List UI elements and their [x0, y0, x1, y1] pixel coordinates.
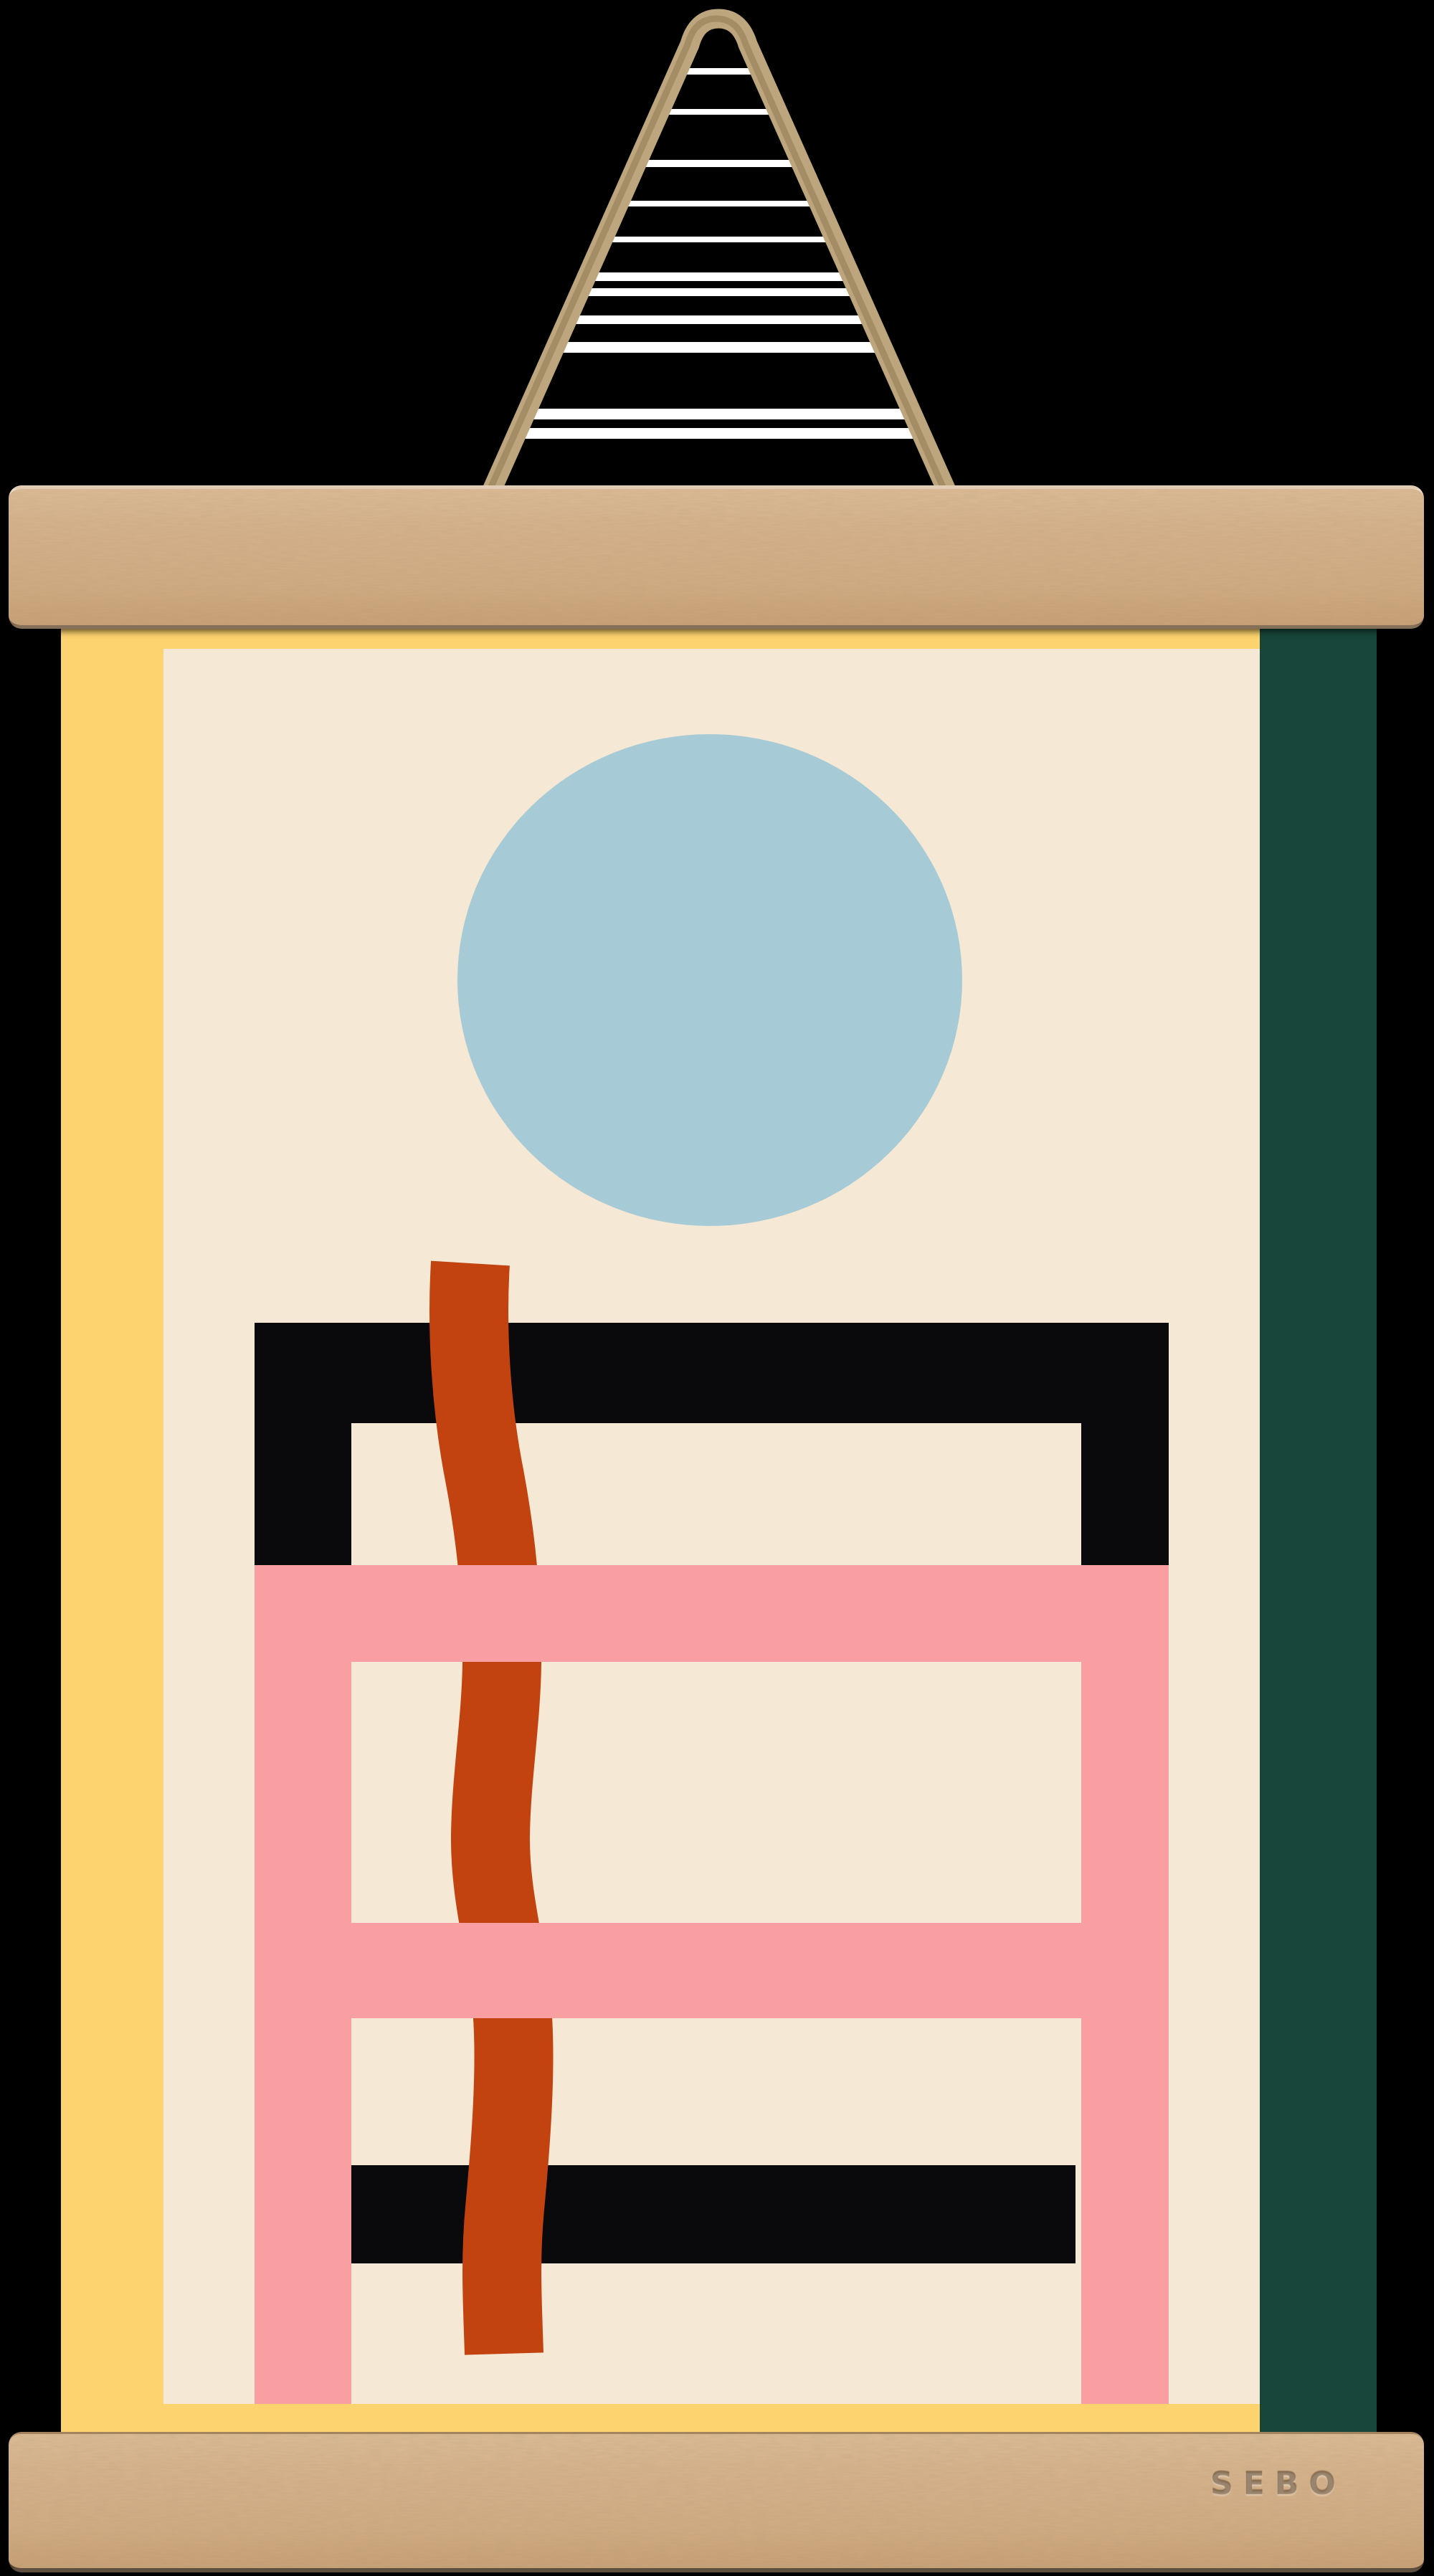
artwork-orange-squiggle	[0, 0, 1434, 2576]
artwork-pink-middle-bar	[255, 1923, 1169, 2018]
wood-hanger-bottom-bar: SEBO	[9, 2432, 1424, 2572]
wood-grain-texture	[9, 489, 1424, 625]
wood-hanger-top-bar	[9, 485, 1424, 629]
product-photo-black-background: { "hanger": { "brand_label": "SEBO" }, "…	[0, 0, 1434, 2576]
artwork-pink-top-bar	[255, 1565, 1169, 1662]
hanger-brand-emboss-label: SEBO	[1210, 2466, 1346, 2502]
